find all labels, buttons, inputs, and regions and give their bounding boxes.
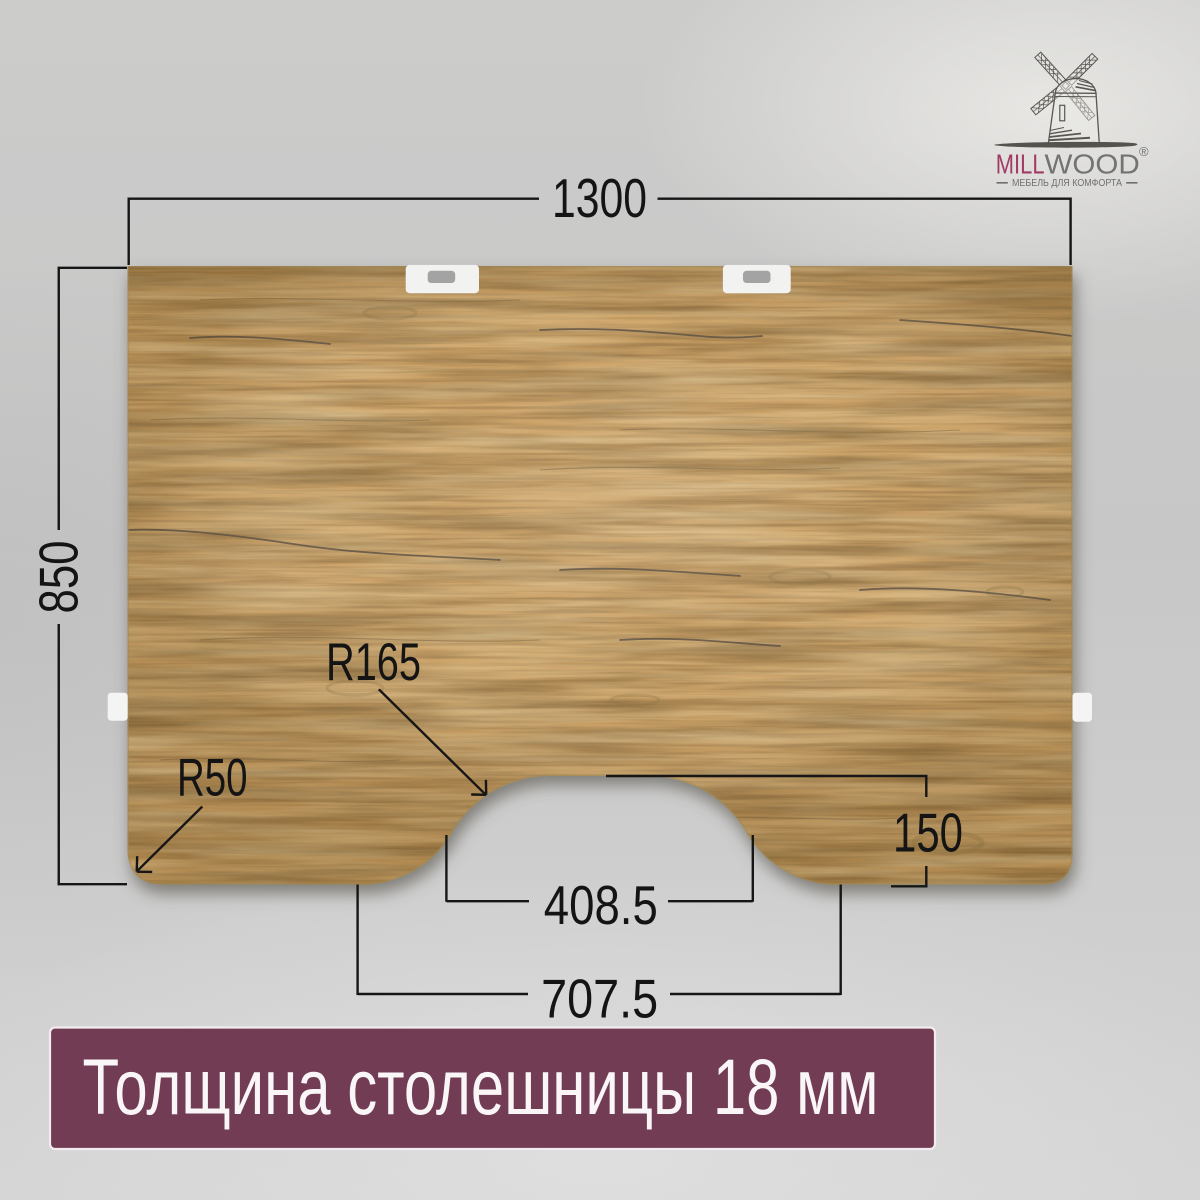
svg-text:МЕБЕЛЬ ДЛЯ КОМФОРТА: МЕБЕЛЬ ДЛЯ КОМФОРТА [1012, 178, 1122, 189]
svg-text:408.5: 408.5 [544, 875, 658, 936]
svg-text:R165: R165 [326, 633, 421, 692]
svg-text:WOOD: WOOD [1045, 149, 1140, 180]
svg-text:150: 150 [893, 803, 963, 864]
svg-text:1300: 1300 [552, 168, 647, 229]
svg-text:R50: R50 [177, 749, 248, 808]
svg-text:MILL: MILL [996, 149, 1045, 180]
svg-text:850: 850 [29, 541, 90, 614]
svg-text:707.5: 707.5 [541, 969, 658, 1030]
svg-text:Толщина столешницы 18 мм: Толщина столешницы 18 мм [83, 1042, 879, 1131]
svg-text:®: ® [1139, 144, 1149, 159]
